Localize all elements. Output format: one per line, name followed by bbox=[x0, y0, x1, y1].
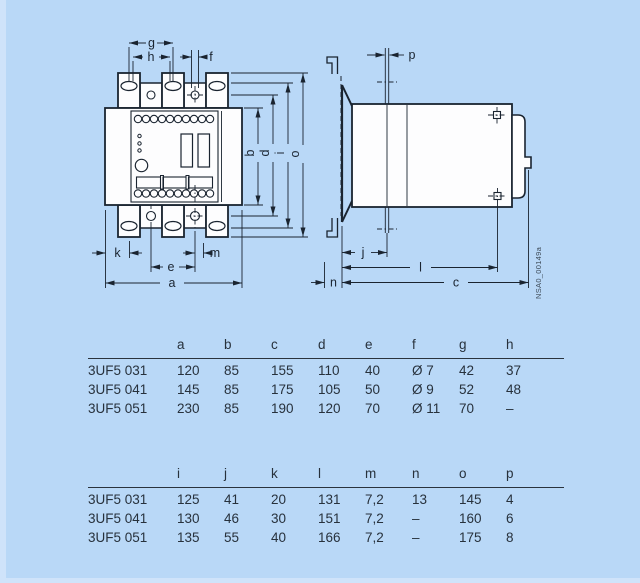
side-view: p j l n c NSA0_00149a bbox=[311, 48, 543, 299]
table-cell: 85 bbox=[221, 361, 268, 380]
dim-label-k: k bbox=[114, 246, 121, 260]
page-edge-bottom bbox=[0, 578, 640, 583]
table-cell: 85 bbox=[221, 399, 268, 418]
table-corner bbox=[88, 334, 174, 356]
din-rail-hook-top bbox=[327, 57, 338, 74]
row-model: 3UF5 041 bbox=[88, 380, 174, 399]
table-cell: 230 bbox=[174, 399, 221, 418]
table-cell: Ø 7 bbox=[409, 361, 456, 380]
table-cell: 40 bbox=[362, 361, 409, 380]
col-header: i bbox=[174, 463, 221, 485]
col-header: e bbox=[362, 334, 409, 356]
table-cell: 125 bbox=[174, 490, 221, 509]
dim-label-p: p bbox=[409, 48, 416, 62]
table-cell: 46 bbox=[221, 509, 268, 528]
dim-label-c: c bbox=[453, 276, 459, 290]
table-cell: – bbox=[409, 509, 456, 528]
table-cell: 70 bbox=[362, 399, 409, 418]
table-cell: 48 bbox=[503, 380, 564, 399]
table-cell: – bbox=[503, 399, 564, 418]
dim-label-j: j bbox=[361, 246, 365, 260]
table-cell: 70 bbox=[456, 399, 503, 418]
dim-label-i: i bbox=[273, 152, 287, 155]
dim-label-l: l bbox=[419, 261, 422, 275]
table-cell: 4 bbox=[503, 490, 564, 509]
table-cell: 7,2 bbox=[362, 490, 409, 509]
table-cell: 110 bbox=[315, 361, 362, 380]
table-cell: 120 bbox=[174, 361, 221, 380]
table-cell: 130 bbox=[174, 509, 221, 528]
col-header: n bbox=[409, 463, 456, 485]
table-cell: 145 bbox=[456, 490, 503, 509]
dim-label-o: o bbox=[288, 150, 302, 157]
dimension-table-a-h: a b c d e f g h 3UF5 031 120 85 155 110 … bbox=[88, 334, 564, 418]
col-header: f bbox=[409, 334, 456, 356]
table-cell: 41 bbox=[221, 490, 268, 509]
col-header: d bbox=[315, 334, 362, 356]
row-model: 3UF5 051 bbox=[88, 399, 174, 418]
col-header: l bbox=[315, 463, 362, 485]
table-rule bbox=[88, 487, 564, 488]
table-cell: 145 bbox=[174, 380, 221, 399]
table-cell: 40 bbox=[268, 528, 315, 547]
row-model: 3UF5 041 bbox=[88, 509, 174, 528]
dim-label-e: e bbox=[168, 260, 175, 274]
table-rule bbox=[88, 358, 564, 359]
table-cell: 52 bbox=[456, 380, 503, 399]
dim-label-h: h bbox=[148, 50, 155, 64]
table-cell: Ø 11 bbox=[409, 399, 456, 418]
col-header: p bbox=[503, 463, 564, 485]
table-cell: 105 bbox=[315, 380, 362, 399]
row-model: 3UF5 031 bbox=[88, 361, 174, 380]
col-header: m bbox=[362, 463, 409, 485]
table-cell: 155 bbox=[268, 361, 315, 380]
table-cell: 6 bbox=[503, 509, 564, 528]
row-model: 3UF5 031 bbox=[88, 490, 174, 509]
table-cell: – bbox=[409, 528, 456, 547]
col-header: h bbox=[503, 334, 564, 356]
dim-label-a: a bbox=[169, 276, 176, 290]
table-cell: 7,2 bbox=[362, 528, 409, 547]
figure-annotation: NSA0_00149a bbox=[534, 246, 543, 299]
table-cell: 13 bbox=[409, 490, 456, 509]
table-cell: 42 bbox=[456, 361, 503, 380]
table-cell: 166 bbox=[315, 528, 362, 547]
table-cell: 190 bbox=[268, 399, 315, 418]
table-cell: 55 bbox=[221, 528, 268, 547]
dim-label-n: n bbox=[330, 276, 337, 290]
col-header: o bbox=[456, 463, 503, 485]
table-cell: 8 bbox=[503, 528, 564, 547]
table-cell: 20 bbox=[268, 490, 315, 509]
front-view: g h f b bbox=[92, 36, 308, 290]
col-header: g bbox=[456, 334, 503, 356]
dim-label-m: m bbox=[210, 246, 220, 260]
table-cell: 7,2 bbox=[362, 509, 409, 528]
col-header: c bbox=[268, 334, 315, 356]
table-cell: Ø 9 bbox=[409, 380, 456, 399]
table-cell: 175 bbox=[268, 380, 315, 399]
dim-label-d: d bbox=[258, 149, 272, 156]
col-header: k bbox=[268, 463, 315, 485]
table-cell: 37 bbox=[503, 361, 564, 380]
dim-label-g: g bbox=[148, 36, 155, 50]
table-cell: 50 bbox=[362, 380, 409, 399]
dimension-drawing: g h f b bbox=[0, 0, 640, 320]
table-cell: 85 bbox=[221, 380, 268, 399]
dim-label-b: b bbox=[243, 149, 257, 156]
dim-label-f: f bbox=[209, 50, 213, 64]
row-model: 3UF5 051 bbox=[88, 528, 174, 547]
col-header: j bbox=[221, 463, 268, 485]
din-rail-hook-bottom bbox=[327, 218, 338, 237]
dimension-table-i-p: i j k l m n o p 3UF5 031 125 41 20 131 7… bbox=[88, 463, 564, 547]
col-header: a bbox=[174, 334, 221, 356]
table-corner bbox=[88, 463, 174, 485]
table-cell: 135 bbox=[174, 528, 221, 547]
col-header: b bbox=[221, 334, 268, 356]
table-cell: 131 bbox=[315, 490, 362, 509]
table-cell: 30 bbox=[268, 509, 315, 528]
table-cell: 160 bbox=[456, 509, 503, 528]
table-cell: 151 bbox=[315, 509, 362, 528]
catalog-dimension-page: g h f b bbox=[0, 0, 640, 583]
table-cell: 120 bbox=[315, 399, 362, 418]
table-cell: 175 bbox=[456, 528, 503, 547]
